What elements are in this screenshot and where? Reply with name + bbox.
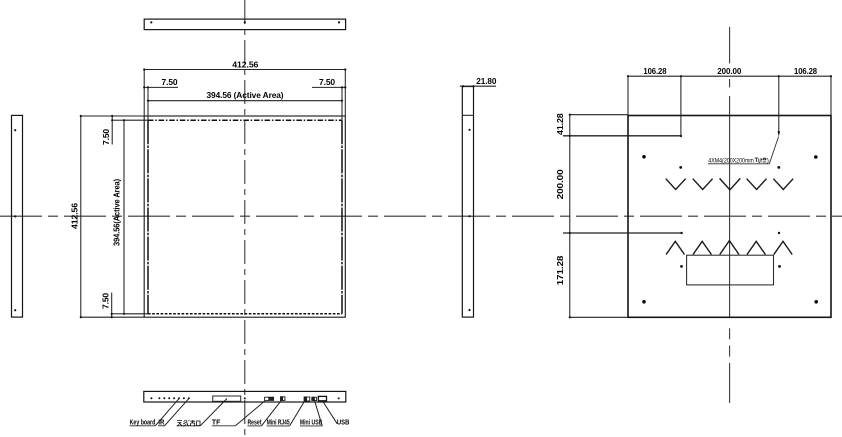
svg-text:Reset: Reset bbox=[248, 420, 262, 427]
svg-text:200.00: 200.00 bbox=[717, 67, 742, 76]
svg-text:7.50: 7.50 bbox=[101, 292, 110, 309]
svg-text:412.56: 412.56 bbox=[232, 60, 259, 69]
svg-text:7.50: 7.50 bbox=[102, 128, 111, 145]
svg-text:21.80: 21.80 bbox=[476, 77, 497, 86]
svg-text:106.28: 106.28 bbox=[794, 67, 818, 76]
svg-text:7.50: 7.50 bbox=[162, 78, 179, 87]
svg-text:106.28: 106.28 bbox=[643, 67, 667, 76]
svg-text:171.28: 171.28 bbox=[556, 255, 565, 285]
svg-text:TF: TF bbox=[212, 420, 221, 427]
svg-text:7.50: 7.50 bbox=[319, 78, 336, 87]
svg-text:4XM4(200X200mm: 4XM4(200X200mm bbox=[708, 157, 754, 164]
svg-text:USB: USB bbox=[337, 420, 350, 427]
svg-text:394.56(Active Area): 394.56(Active Area) bbox=[113, 179, 122, 246]
svg-text:Mini USB: Mini USB bbox=[300, 420, 322, 427]
svg-text:412.56: 412.56 bbox=[71, 202, 80, 229]
svg-text:394.56 (Active Area): 394.56 (Active Area) bbox=[207, 91, 284, 100]
svg-text:Key board: Key board bbox=[130, 420, 156, 427]
svg-text:200.00: 200.00 bbox=[556, 169, 565, 200]
svg-text:41.28: 41.28 bbox=[556, 113, 565, 135]
svg-text:): ) bbox=[767, 157, 769, 164]
svg-text:Mini RJ45: Mini RJ45 bbox=[267, 420, 290, 427]
